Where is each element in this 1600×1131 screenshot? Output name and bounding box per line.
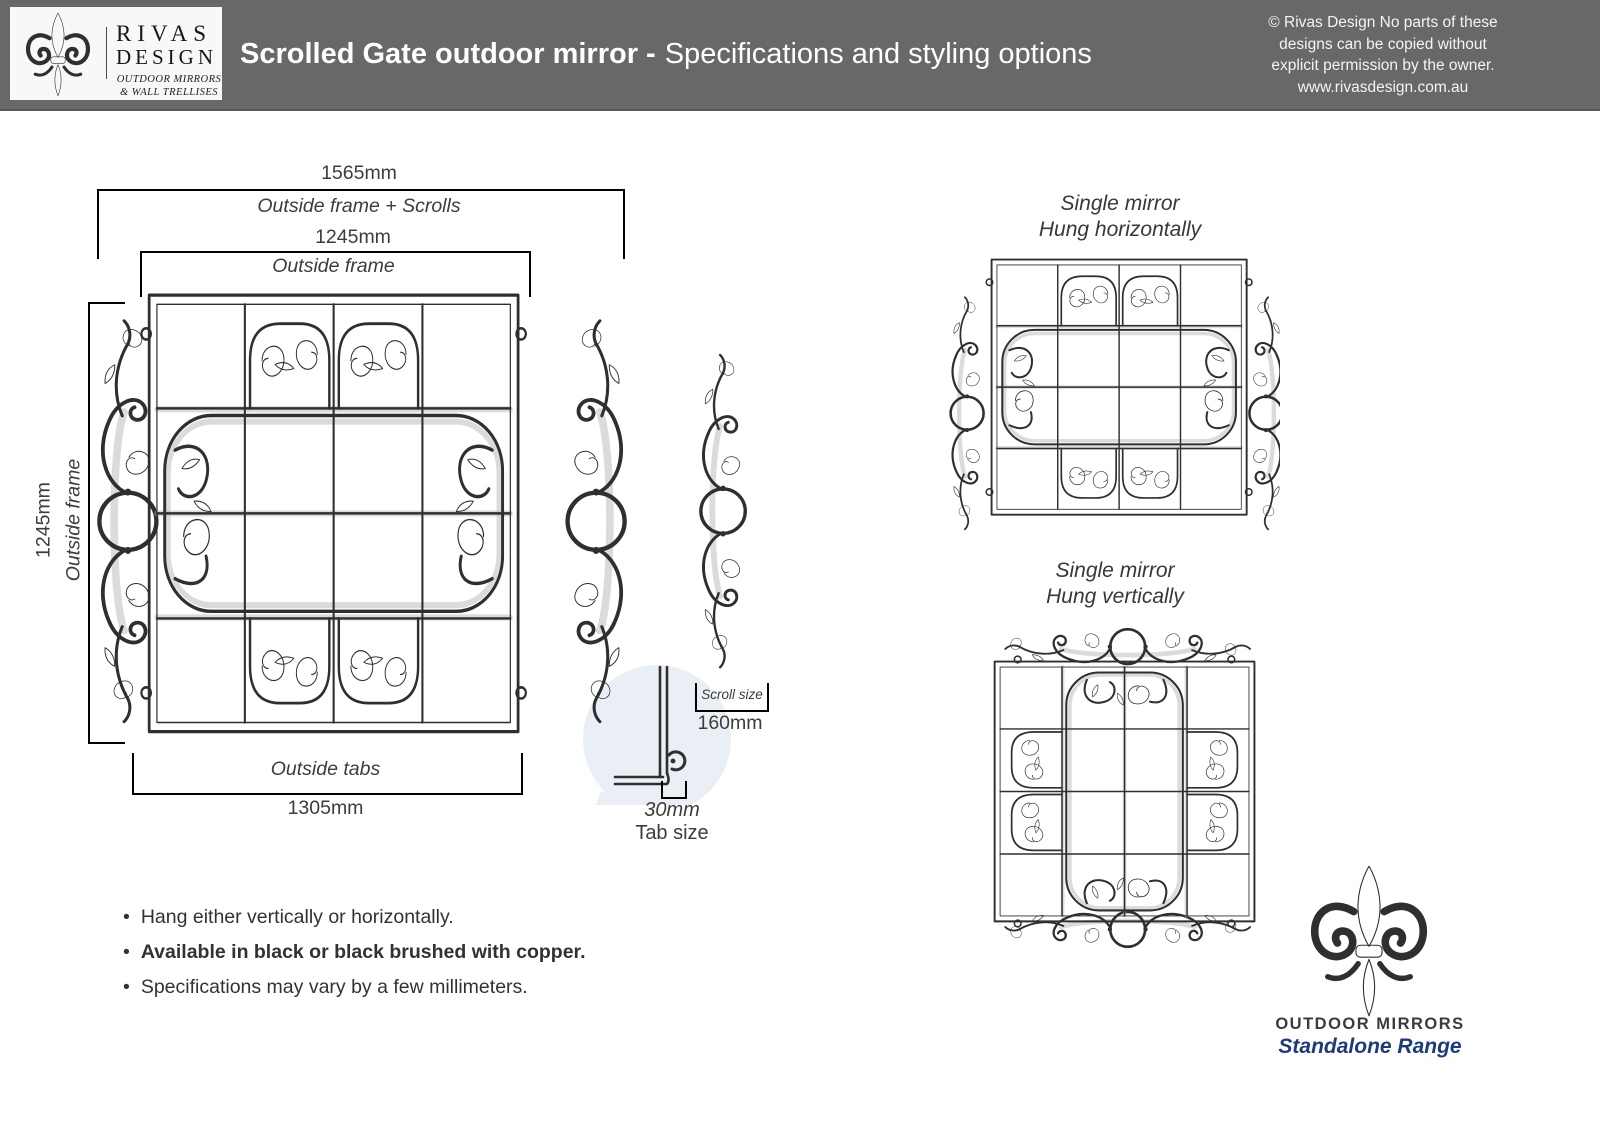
label-tab-size: Tab size bbox=[627, 822, 717, 845]
label-outside-frame-top: Outside frame bbox=[140, 255, 527, 278]
copyright-line: explicit permission by the owner. bbox=[1218, 55, 1548, 77]
notes-list: Hang either vertically or horizontally. … bbox=[123, 906, 585, 1011]
variant-title-line1: Single mirror bbox=[985, 558, 1245, 584]
brand-line2: DESIGN bbox=[116, 46, 222, 69]
rivas-logo: RIVAS DESIGN OUTDOOR MIRRORS & WALL TREL… bbox=[10, 7, 222, 100]
note-text: Hang either vertically or horizontally. bbox=[141, 906, 454, 929]
variant-vertical-title: Single mirror Hung vertically bbox=[985, 558, 1245, 610]
copyright-line: designs can be copied without bbox=[1218, 34, 1548, 56]
watermark-fleur-icon bbox=[1310, 866, 1428, 1018]
header-bar: RIVAS DESIGN OUTDOOR MIRRORS & WALL TREL… bbox=[0, 0, 1600, 111]
page-title: Scrolled Gate outdoor mirror - Specifica… bbox=[240, 38, 1092, 71]
brand-line1: RIVAS bbox=[116, 21, 222, 46]
copyright-link: www.rivasdesign.com.au bbox=[1218, 77, 1548, 99]
label-scroll-size: Scroll size bbox=[697, 683, 767, 707]
note-text: Available in black or black brushed with… bbox=[141, 941, 586, 964]
dim-1565mm: 1565mm bbox=[97, 162, 621, 185]
label-outside-frame-left: Outside frame bbox=[63, 459, 86, 581]
brand-name: RIVAS DESIGN bbox=[116, 21, 222, 69]
dim-1305mm: 1305mm bbox=[132, 797, 519, 820]
fleur-de-lis-icon bbox=[26, 13, 90, 97]
brand-tagline: OUTDOOR MIRRORS & WALL TRELLISES bbox=[110, 73, 228, 99]
note-text: Specifications may vary by a few millime… bbox=[141, 976, 528, 999]
dim-1245mm-left: 1245mm bbox=[33, 482, 56, 558]
variant-horizontal-title: Single mirror Hung horizontally bbox=[990, 191, 1250, 243]
logo-divider bbox=[106, 27, 107, 79]
bracket-scroll-size: Scroll size bbox=[695, 683, 769, 712]
dim-30mm: 30mm bbox=[627, 799, 717, 822]
dim-160mm: 160mm bbox=[660, 712, 800, 735]
page-title-product: Scrolled Gate outdoor mirror - bbox=[240, 38, 656, 71]
page-title-subtitle: Specifications and styling options bbox=[665, 38, 1092, 71]
label-outside-frame-scrolls: Outside frame + Scrolls bbox=[97, 195, 621, 218]
vertical-mirror-sketch bbox=[940, 605, 1270, 975]
label-outside-tabs: Outside tabs bbox=[132, 758, 519, 781]
main-mirror-sketch bbox=[90, 283, 650, 748]
variant-title-line2: Hung horizontally bbox=[990, 217, 1250, 243]
tagline-line1: OUTDOOR MIRRORS bbox=[110, 73, 228, 86]
note-item: Specifications may vary by a few millime… bbox=[123, 976, 585, 999]
variant-title-line1: Single mirror bbox=[990, 191, 1250, 217]
note-item: Hang either vertically or horizontally. bbox=[123, 906, 585, 929]
note-item: Available in black or black brushed with… bbox=[123, 941, 585, 964]
scroll-detail-sketch bbox=[692, 352, 768, 674]
tagline-line2: & WALL TRELLISES bbox=[110, 86, 228, 99]
horizontal-mirror-sketch bbox=[935, 245, 1280, 535]
bracket-tab-size bbox=[661, 781, 687, 799]
footer-range-name: Standalone Range bbox=[1245, 1035, 1495, 1059]
dim-1245mm-top: 1245mm bbox=[141, 226, 565, 249]
copyright-line: © Rivas Design No parts of these bbox=[1218, 12, 1548, 34]
footer-range-category: OUTDOOR MIRRORS bbox=[1245, 1015, 1495, 1034]
copyright-notice: © Rivas Design No parts of these designs… bbox=[1218, 12, 1548, 98]
